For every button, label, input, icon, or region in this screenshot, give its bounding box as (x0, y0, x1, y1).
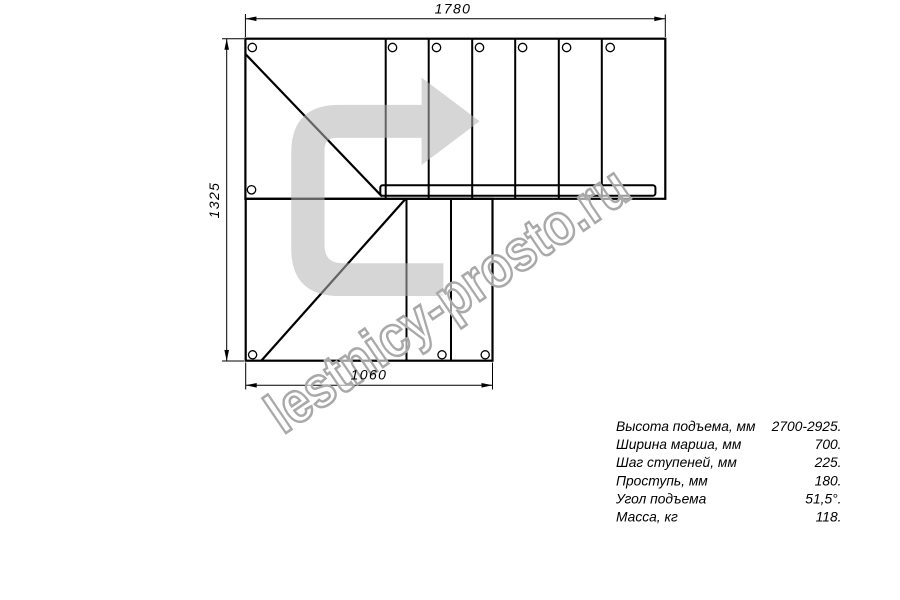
svg-text:51,5°.: 51,5°. (805, 491, 841, 506)
svg-text:Проступь, мм: Проступь, мм (616, 473, 708, 488)
svg-text:Шаг ступеней, мм: Шаг ступеней, мм (616, 455, 737, 470)
svg-text:2700-2925.: 2700-2925. (771, 419, 842, 434)
svg-text:1325: 1325 (206, 182, 222, 219)
svg-text:700.: 700. (815, 437, 842, 452)
svg-text:225.: 225. (814, 455, 842, 470)
svg-text:Ширина марша, мм: Ширина марша, мм (616, 437, 742, 452)
svg-text:118.: 118. (816, 510, 842, 525)
svg-text:1060: 1060 (351, 367, 388, 383)
svg-text:180.: 180. (815, 473, 842, 488)
svg-text:Масса, кг: Масса, кг (616, 510, 678, 525)
svg-text:Угол подъема: Угол подъема (615, 491, 707, 506)
svg-text:1780: 1780 (435, 1, 472, 17)
svg-text:Высота подъема, мм: Высота подъема, мм (616, 419, 756, 434)
